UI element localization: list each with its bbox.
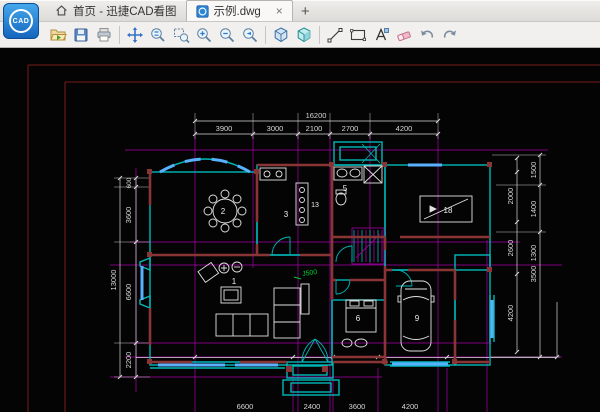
redo-icon	[441, 26, 459, 44]
annotation-text: J500	[302, 269, 318, 278]
room-label-13: 13	[311, 202, 319, 209]
green-annotation: J500	[294, 269, 318, 279]
tab-home[interactable]: 首页 - 迅捷CAD看图	[46, 0, 186, 21]
dim-left-4: 2200	[124, 352, 133, 369]
dim-right-outer-4: 3500	[529, 266, 538, 283]
tab-bar: CAD 首页 - 迅捷CAD看图 示例.dwg × +	[0, 0, 600, 22]
tab-document-label: 示例.dwg	[214, 3, 261, 19]
dim-top-5: 4200	[396, 124, 413, 133]
eraser-icon	[395, 26, 413, 44]
draw-line-button[interactable]	[324, 24, 346, 46]
floor-plan-drawing: 16200 3900 3000 2100 2700 4200 13000 600…	[0, 48, 600, 412]
dim-bottom-1: 6600	[237, 402, 254, 411]
furniture	[198, 166, 472, 351]
undo-icon	[418, 26, 436, 44]
dimension-lines	[114, 113, 560, 379]
dim-top-3: 2100	[306, 124, 323, 133]
toolbar-separator	[119, 26, 120, 44]
zoom-previous-icon	[241, 26, 259, 44]
save-button[interactable]	[70, 24, 92, 46]
zoom-window-icon	[172, 26, 190, 44]
tab-close-button[interactable]: ×	[276, 5, 283, 17]
dim-left-2: 3600	[124, 207, 133, 224]
save-icon	[72, 26, 90, 44]
line-tool-icon	[326, 26, 344, 44]
dim-top-2: 3000	[267, 124, 284, 133]
dim-right-outer-2: 1400	[529, 201, 538, 218]
dim-top-4: 2700	[342, 124, 359, 133]
home-icon	[55, 4, 68, 17]
zoom-in-button[interactable]	[193, 24, 215, 46]
logo-text: CAD	[13, 18, 30, 25]
tab-document[interactable]: 示例.dwg ×	[186, 0, 293, 21]
redo-button[interactable]	[439, 24, 461, 46]
zoom-in-icon	[195, 26, 213, 44]
app-logo[interactable]: CAD	[3, 3, 39, 39]
dim-bottom-4: 4200	[402, 402, 419, 411]
column-markers	[147, 162, 492, 372]
print-button[interactable]	[93, 24, 115, 46]
room-label-5: 5	[343, 184, 348, 193]
toolbar-separator	[265, 26, 266, 44]
view-3d-wireframe-button[interactable]	[270, 24, 292, 46]
room-label-3: 3	[284, 210, 289, 219]
cube-shaded-icon	[295, 26, 313, 44]
dim-top-1: 3900	[216, 124, 233, 133]
zoom-out-icon	[218, 26, 236, 44]
drawing-canvas[interactable]: 16200 3900 3000 2100 2700 4200 13000 600…	[0, 48, 600, 412]
room-label-9: 9	[415, 314, 420, 323]
toolbar-separator	[319, 26, 320, 44]
dim-bottom-3: 3600	[349, 402, 366, 411]
open-file-icon	[49, 26, 67, 44]
text-tool-icon	[372, 26, 390, 44]
draw-rectangle-button[interactable]	[347, 24, 369, 46]
pan-icon	[126, 26, 144, 44]
dim-right-outer-3: 1300	[529, 245, 538, 262]
dim-left-3: 6600	[124, 284, 133, 301]
new-tab-button[interactable]: +	[301, 4, 310, 19]
dim-right-outer-1: 1500	[529, 162, 538, 179]
view-3d-shaded-button[interactable]	[293, 24, 315, 46]
room-label-1: 1	[232, 277, 237, 286]
dim-left-total: 13000	[109, 270, 118, 291]
print-icon	[95, 26, 113, 44]
dim-right-inner-3: 4200	[506, 305, 515, 322]
dim-right-inner-2: 2600	[506, 240, 515, 257]
open-file-button[interactable]	[47, 24, 69, 46]
dim-top-total: 16200	[306, 111, 327, 120]
zoom-realtime-button[interactable]	[147, 24, 169, 46]
add-text-button[interactable]	[370, 24, 392, 46]
zoom-realtime-icon	[149, 26, 167, 44]
eraser-button[interactable]	[393, 24, 415, 46]
room-label-2: 2	[221, 207, 226, 216]
window-segments	[142, 159, 492, 365]
dim-left-1: 600	[126, 177, 133, 188]
main-toolbar	[0, 22, 600, 48]
undo-button[interactable]	[416, 24, 438, 46]
dwg-file-icon	[196, 5, 209, 18]
zoom-out-button[interactable]	[216, 24, 238, 46]
rectangle-tool-icon	[349, 26, 367, 44]
cad-logo-icon: CAD	[9, 9, 33, 33]
dim-bottom-2: 2400	[304, 402, 321, 411]
tab-home-label: 首页 - 迅捷CAD看图	[73, 3, 177, 19]
pan-button[interactable]	[124, 24, 146, 46]
zoom-previous-button[interactable]	[239, 24, 261, 46]
room-numbers: 1 2 3 5 6 9 13 18	[221, 184, 453, 323]
cube-wireframe-icon	[272, 26, 290, 44]
zoom-window-button[interactable]	[170, 24, 192, 46]
room-label-18: 18	[444, 206, 453, 215]
dim-right-inner-1: 2000	[506, 188, 515, 205]
room-label-6: 6	[356, 314, 361, 323]
